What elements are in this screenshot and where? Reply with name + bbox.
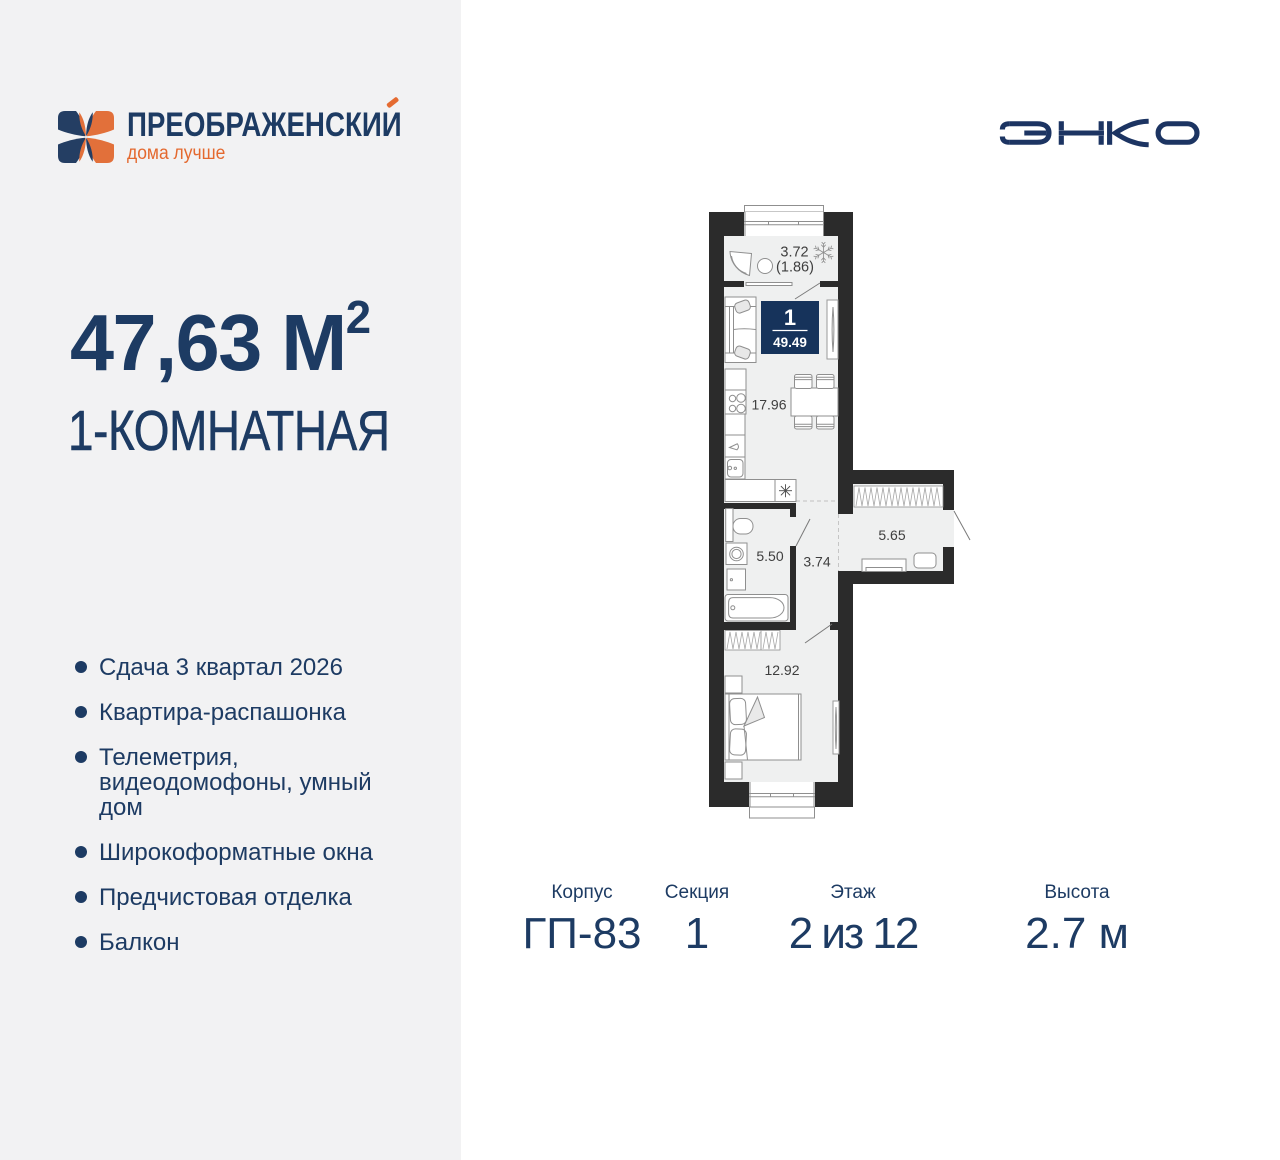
svg-text:5.65: 5.65	[878, 527, 905, 543]
svg-text:3.74: 3.74	[803, 554, 830, 570]
svg-text:5.50: 5.50	[756, 548, 783, 564]
svg-text:(1.86): (1.86)	[776, 260, 814, 276]
svg-text:17.96: 17.96	[751, 397, 786, 413]
svg-text:1: 1	[784, 305, 796, 330]
svg-text:12.92: 12.92	[764, 662, 799, 678]
svg-text:3.72: 3.72	[780, 245, 808, 261]
svg-text:49.49: 49.49	[773, 335, 807, 350]
